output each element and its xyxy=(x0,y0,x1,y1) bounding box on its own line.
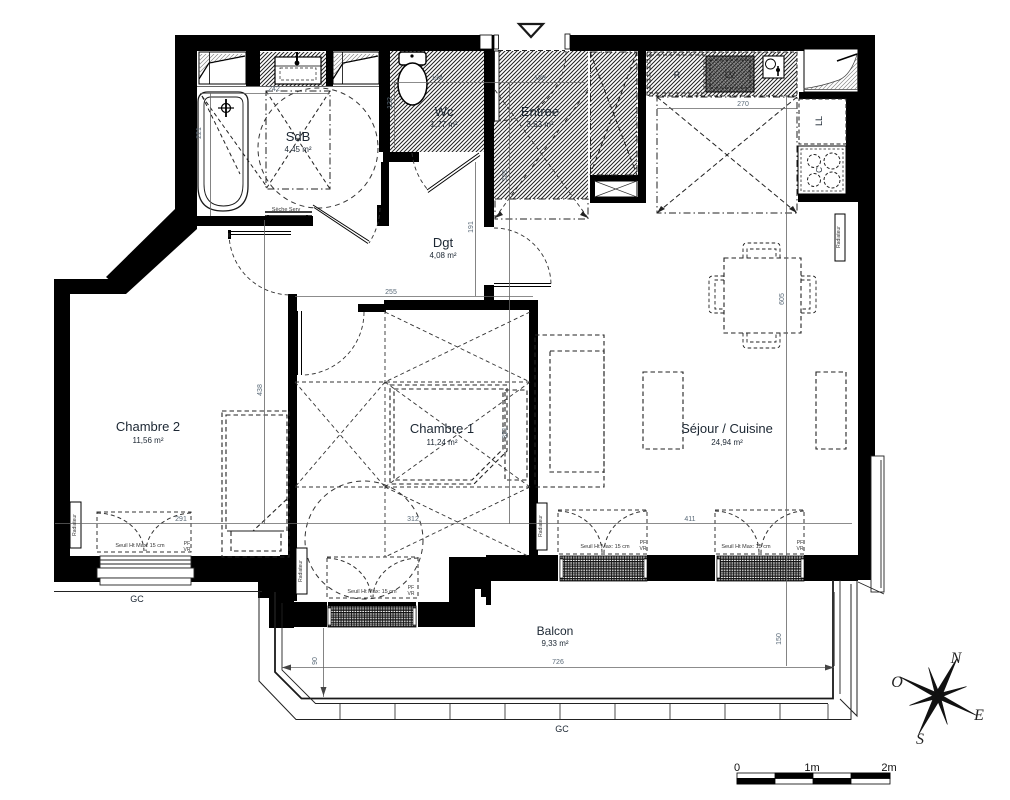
svg-text:Seuil Ht Max: 15 cm: Seuil Ht Max: 15 cm xyxy=(721,544,771,550)
svg-text:1,77 m²: 1,77 m² xyxy=(430,120,457,129)
svg-text:0: 0 xyxy=(734,762,740,774)
svg-text:438: 438 xyxy=(257,384,264,396)
svg-text:411: 411 xyxy=(684,516,695,523)
svg-text:SdB: SdB xyxy=(286,129,311,144)
svg-text:128: 128 xyxy=(534,75,546,82)
svg-text:132: 132 xyxy=(387,97,394,109)
svg-text:312: 312 xyxy=(407,516,419,523)
svg-text:Wc: Wc xyxy=(435,104,454,119)
svg-text:Radiateur: Radiateur xyxy=(538,515,544,537)
svg-text:GC: GC xyxy=(130,594,144,604)
svg-text:291: 291 xyxy=(175,516,187,523)
svg-text:90: 90 xyxy=(312,657,319,665)
svg-text:24,94 m²: 24,94 m² xyxy=(711,438,743,447)
svg-text:S: S xyxy=(916,731,924,748)
svg-text:LV: LV xyxy=(725,70,735,80)
svg-text:Dgt: Dgt xyxy=(433,235,454,250)
svg-text:605: 605 xyxy=(779,293,786,305)
svg-text:Seuil Ht Max: 15 cm: Seuil Ht Max: 15 cm xyxy=(580,544,630,550)
svg-text:4,45 m²: 4,45 m² xyxy=(284,145,311,154)
svg-text:Balcon: Balcon xyxy=(537,624,574,638)
svg-text:Seuil Ht Max: 15 cm: Seuil Ht Max: 15 cm xyxy=(347,589,397,595)
svg-text:LL: LL xyxy=(814,116,824,126)
svg-text:191: 191 xyxy=(468,221,475,233)
svg-text:VR: VR xyxy=(797,546,804,552)
svg-text:Sèche Serv: Sèche Serv xyxy=(272,207,301,213)
svg-text:1m: 1m xyxy=(804,762,819,774)
svg-text:Séjour / Cuisine: Séjour / Cuisine xyxy=(681,421,773,436)
svg-text:4,08 m²: 4,08 m² xyxy=(429,251,456,260)
svg-text:Radiateur: Radiateur xyxy=(836,226,842,248)
svg-text:328: 328 xyxy=(502,170,509,182)
svg-text:255: 255 xyxy=(385,289,397,296)
svg-text:N: N xyxy=(950,650,963,667)
svg-text:11,24 m²: 11,24 m² xyxy=(427,438,458,447)
svg-text:150: 150 xyxy=(776,633,783,645)
svg-text:GC: GC xyxy=(555,724,569,734)
svg-text:321: 321 xyxy=(502,427,509,439)
svg-text:Entrée: Entrée xyxy=(521,104,559,119)
svg-text:726: 726 xyxy=(552,659,564,666)
svg-text:E: E xyxy=(973,707,984,724)
svg-text:VR: VR xyxy=(408,591,415,597)
svg-text:Radiateur: Radiateur xyxy=(298,560,304,582)
svg-text:Chambre 1: Chambre 1 xyxy=(410,421,474,436)
svg-text:Chambre 2: Chambre 2 xyxy=(116,419,180,434)
svg-text:VR: VR xyxy=(640,546,647,552)
svg-text:221: 221 xyxy=(196,127,203,139)
svg-text:R: R xyxy=(674,70,681,80)
svg-text:O: O xyxy=(891,674,903,691)
svg-text:3,53 m²: 3,53 m² xyxy=(526,120,553,129)
svg-text:2m: 2m xyxy=(881,762,896,774)
svg-text:11,56 m²: 11,56 m² xyxy=(133,436,164,445)
svg-text:VR: VR xyxy=(184,547,191,553)
svg-text:9,33 m²: 9,33 m² xyxy=(541,639,568,648)
svg-text:Radiateur: Radiateur xyxy=(72,514,78,536)
svg-text:242: 242 xyxy=(268,86,280,93)
svg-text:Seuil Ht Max: 15 cm: Seuil Ht Max: 15 cm xyxy=(115,543,165,549)
svg-text:C: C xyxy=(815,167,824,173)
svg-text:270: 270 xyxy=(737,101,749,108)
svg-text:134: 134 xyxy=(431,75,443,82)
